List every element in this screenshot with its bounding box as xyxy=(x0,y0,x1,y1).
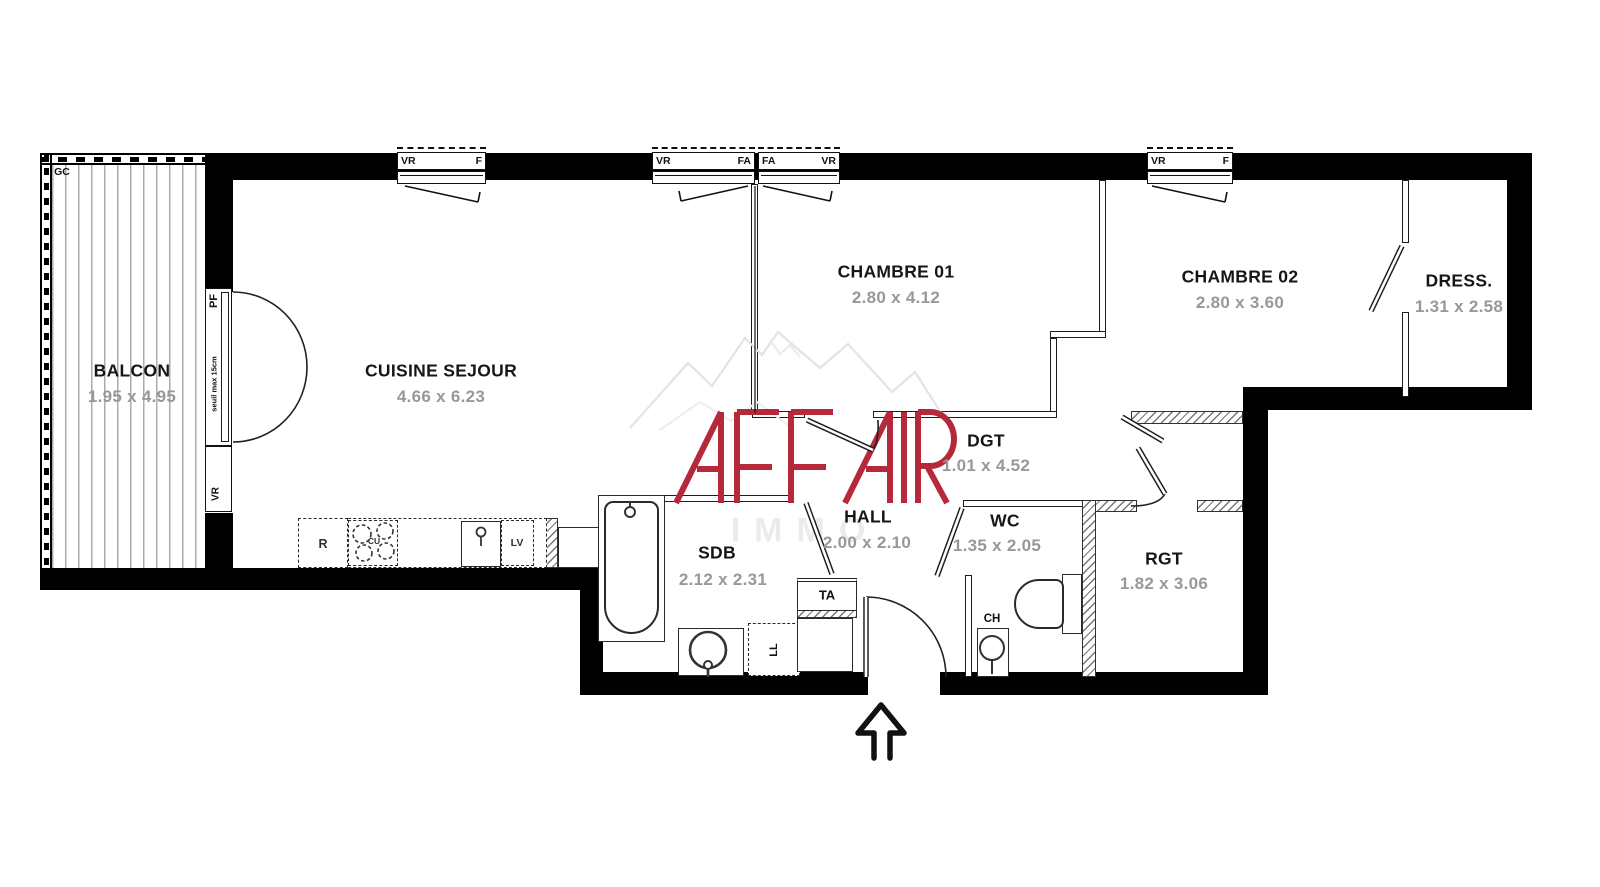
room-name-wc: WC xyxy=(990,511,1020,532)
room-name-hall: HALL xyxy=(844,507,892,528)
room-dims-chambre1: 2.80 x 4.12 xyxy=(852,288,940,308)
window-pane xyxy=(1147,171,1233,184)
window-label-row: VR F xyxy=(397,152,486,170)
vr-label: VR xyxy=(211,487,222,501)
window-bedroom2: VR F xyxy=(1147,147,1233,184)
water-heater-box xyxy=(977,628,1009,677)
room-name-dress: DRESS. xyxy=(1426,271,1493,292)
toilet-tank xyxy=(1062,574,1082,634)
partition-wall xyxy=(1402,180,1409,243)
hatched-wall xyxy=(1131,411,1243,424)
wall-segment xyxy=(205,513,233,570)
gc-label: GC xyxy=(54,166,70,178)
room-dims-sdb: 2.12 x 2.31 xyxy=(679,570,767,590)
partition-wall xyxy=(965,575,972,677)
partition-wall xyxy=(873,411,1057,418)
room-dims-cuisine: 4.66 x 6.23 xyxy=(397,387,485,407)
window-bedroom1-left: VR FA xyxy=(652,147,755,184)
kitchen-cupboard xyxy=(558,527,600,568)
hob-label: CU xyxy=(368,536,380,546)
partition-wall xyxy=(963,500,1083,507)
wall-segment xyxy=(205,163,233,292)
entrance-arrow-icon xyxy=(858,705,904,758)
balcony-railing-left xyxy=(40,153,52,568)
room-name-sdb: SDB xyxy=(698,543,736,564)
wall-segment xyxy=(1507,153,1532,410)
room-name-cuisine: CUISINE SEJOUR xyxy=(365,361,517,382)
bathroom-sink-cabinet xyxy=(678,628,744,676)
window-living: VR F xyxy=(397,147,486,184)
room-dims-hall: 2.00 x 2.10 xyxy=(823,533,911,553)
bathtub xyxy=(604,501,659,634)
fridge-label: R xyxy=(318,537,327,551)
window-label-right: F xyxy=(1223,155,1229,167)
wall-segment xyxy=(1243,387,1268,695)
hatched-wall xyxy=(1082,500,1096,677)
partition-wall xyxy=(752,411,805,418)
room-name-rgt: RGT xyxy=(1145,549,1183,570)
dishwasher-label: LV xyxy=(511,537,524,549)
window-pane xyxy=(758,171,840,184)
kitchen-sink-box xyxy=(461,521,501,567)
affair-watermark xyxy=(676,412,954,503)
window-label-left: VR xyxy=(656,155,671,167)
room-dims-dgt: 1.01 x 4.52 xyxy=(942,456,1030,476)
room-dims-chambre2: 2.80 x 3.60 xyxy=(1196,293,1284,313)
room-name-chambre1: CHAMBRE 01 xyxy=(838,262,955,283)
pf-label: PF xyxy=(208,294,220,308)
window-label-right: VR xyxy=(821,155,836,167)
partition-wall xyxy=(1050,338,1057,413)
window-label-right: FA xyxy=(738,155,751,167)
partition-wall xyxy=(1402,312,1409,397)
balcony-door-leaves xyxy=(221,292,229,442)
window-pane xyxy=(397,171,486,184)
room-name-chambre2: CHAMBRE 02 xyxy=(1182,267,1299,288)
room-dims-dress: 1.31 x 2.58 xyxy=(1415,297,1503,317)
window-pane xyxy=(652,171,755,184)
window-label-row: FA VR xyxy=(758,152,840,170)
room-dims-balcon: 1.95 x 4.95 xyxy=(88,387,176,407)
hall-cupboard xyxy=(797,618,853,672)
room-dims-rgt: 1.82 x 3.06 xyxy=(1120,574,1208,594)
window-label-left: VR xyxy=(401,155,416,167)
window-label-row: VR FA xyxy=(652,152,755,170)
partition-wall xyxy=(1050,331,1106,338)
wall-segment xyxy=(40,568,603,590)
window-label-row: VR F xyxy=(1147,152,1233,170)
floor-plan: GC VR F VR FA xyxy=(0,0,1600,887)
window-bedroom1-right: FA VR xyxy=(758,147,840,184)
window-label-left: FA xyxy=(762,155,775,167)
partition-wall xyxy=(751,184,758,413)
partition-wall xyxy=(1099,180,1106,333)
balcony-shutter-strip xyxy=(205,446,232,512)
ll-label: LL xyxy=(768,643,780,656)
room-dims-wc: 1.35 x 2.05 xyxy=(953,536,1041,556)
hatched-wall xyxy=(1197,500,1243,512)
window-label-right: F xyxy=(476,155,482,167)
room-name-dgt: DGT xyxy=(967,431,1005,452)
wall-segment xyxy=(1243,387,1532,410)
toilet-bowl xyxy=(1014,579,1064,629)
plan-linework xyxy=(0,0,1600,887)
seuil-label: seuil max 15cm xyxy=(210,356,219,411)
window-label-left: VR xyxy=(1151,155,1166,167)
room-name-balcon: BALCON xyxy=(94,361,171,382)
ch-label: CH xyxy=(984,613,1001,625)
balcony-railing-top xyxy=(40,153,206,165)
ta-label: TA xyxy=(819,588,835,603)
